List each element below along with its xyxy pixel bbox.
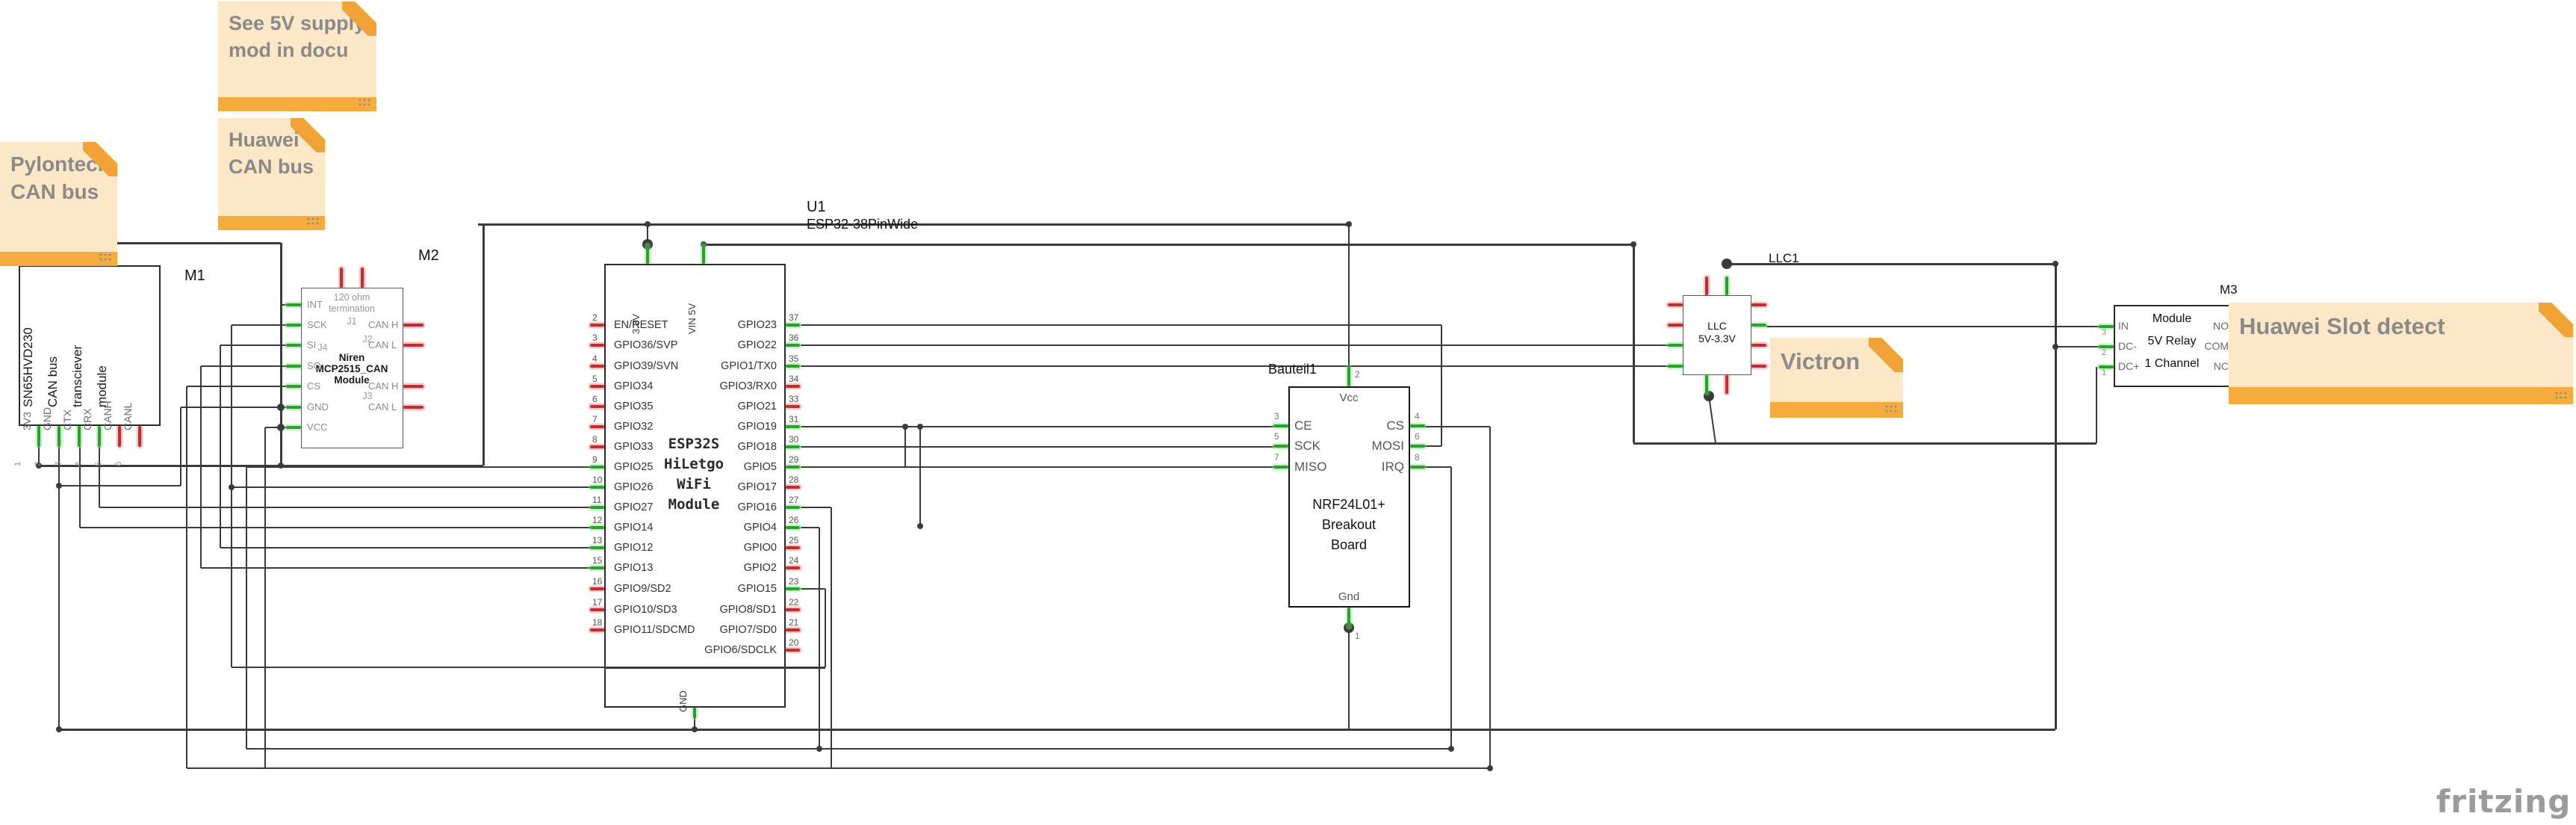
wire-junction-dot	[277, 424, 285, 431]
esp32-pin-label: GPIO15	[738, 583, 777, 595]
m2-pin-label: VCC	[307, 421, 327, 433]
llc-right-pin[interactable]	[1751, 324, 1766, 327]
wire-segment[interactable]	[201, 365, 286, 367]
m3-pin-label: DC-	[2118, 340, 2137, 352]
esp32-pin-gnd[interactable]	[693, 708, 696, 718]
esp32-pin-label: GPIO6/SDCLK	[704, 644, 777, 656]
wire-segment[interactable]	[1348, 628, 1350, 729]
esp32-pin-label: GPIO27	[614, 501, 653, 513]
esp32-pin-GPIO13[interactable]	[590, 566, 604, 569]
wire-segment[interactable]	[281, 304, 286, 306]
m2-pin-label: CAN L	[368, 401, 397, 412]
esp32-pin-label: GPIO19	[738, 421, 777, 433]
esp32-pin-label: GPIO14	[614, 522, 653, 534]
wire-segment[interactable]	[246, 467, 247, 749]
esp32-pin-number: 34	[789, 374, 798, 384]
wire-segment[interactable]	[801, 426, 1273, 427]
esp32-pin-GPIO25[interactable]	[590, 466, 604, 469]
wire-segment[interactable]	[232, 667, 633, 668]
esp32-pin-number: 37	[789, 312, 798, 323]
esp32-pin-number: 6	[592, 394, 598, 404]
m1-pin-number: 4	[74, 462, 83, 466]
m2-pin-CAN L[interactable]	[403, 406, 423, 409]
m2-pin-CAN H[interactable]	[403, 324, 423, 327]
esp32-top-pin-label: VIN 5V	[686, 303, 698, 334]
note-bottom-bar	[1770, 402, 1903, 418]
nrf-title-line: NRF24L01+	[1312, 497, 1385, 513]
m1-pin-CRX[interactable]	[98, 426, 101, 447]
esp32-pin-number: 4	[592, 353, 598, 364]
m2-pin-label: CAN H	[368, 319, 398, 330]
esp32-pin-GPIO8/SD1[interactable]	[786, 608, 800, 611]
note-5v-supply[interactable]: See 5V supplymod in docu	[218, 1, 376, 111]
ref-m2: M2	[418, 247, 439, 265]
m2-pin-label: CAN L	[368, 339, 397, 350]
nrf-pin-label: SCK	[1294, 439, 1320, 454]
nrf-pin-CS[interactable]	[1410, 424, 1425, 427]
esp32-pin-GPIO23[interactable]	[786, 324, 800, 327]
esp32-pin-GPIO17[interactable]	[786, 486, 800, 489]
m3-pin-number: 1	[2102, 368, 2106, 377]
note-victron[interactable]: Victron	[1770, 338, 1903, 418]
note-grip-dots-icon	[99, 253, 112, 262]
esp32-pin-label: GPIO21	[738, 401, 777, 412]
m1-pin-GND[interactable]	[58, 426, 60, 447]
schematic-canvas: SN65HVD230CAN bustranscievermodule3V31GN…	[0, 0, 2576, 825]
esp32-pin-GPIO5[interactable]	[786, 466, 800, 469]
esp32-pin-number: 10	[592, 475, 602, 485]
m3-title-line: Module	[2153, 312, 2191, 326]
esp32-pin-label: GPIO13	[614, 562, 653, 574]
esp32-pin-number: 2	[592, 312, 598, 323]
m2-pin-INT[interactable]	[286, 303, 301, 306]
esp32-title-line: ESP32S	[668, 436, 720, 452]
esp32-pin-3.3V[interactable]	[646, 244, 649, 264]
esp32-pin-label: GPIO5	[744, 461, 777, 473]
wire-segment[interactable]	[1766, 326, 2099, 327]
wire-segment[interactable]	[1441, 325, 1442, 446]
note-huawei-can[interactable]: HuaweiCAN bus	[218, 118, 325, 230]
m2-title-line: MCP2515_CAN	[316, 363, 388, 374]
wire-segment[interactable]	[59, 729, 2055, 731]
m1-title-line: SN65HVD230	[21, 327, 36, 407]
esp32-pin-number: 15	[592, 555, 602, 566]
esp32-pin-GPIO18[interactable]	[786, 445, 800, 448]
wire-segment[interactable]	[801, 324, 1441, 326]
m1-pin-number: 6	[114, 462, 123, 466]
esp32-pin-GPIO9/SD2[interactable]	[590, 587, 604, 590]
m2-small-text: termination	[329, 303, 375, 314]
m2-pin-label: CAN H	[368, 380, 398, 392]
nrf-title-line: Breakout	[1322, 517, 1376, 533]
m2-pin-GND[interactable]	[286, 406, 301, 409]
nrf-pin-label: CE	[1294, 418, 1312, 433]
wire-junction-dot	[56, 483, 62, 489]
wire-segment[interactable]	[919, 427, 921, 527]
llc-right-pin[interactable]	[1751, 303, 1766, 306]
esp32-pin-number: 28	[789, 475, 798, 485]
m1-pin-number: 2	[34, 462, 43, 466]
esp32-pin-VIN 5V[interactable]	[702, 244, 705, 264]
esp32-pin-label: GPIO22	[738, 339, 777, 351]
esp32-pin-number: 20	[789, 637, 798, 648]
llc-right-pin[interactable]	[1751, 344, 1766, 347]
wire-junction-dot	[1346, 221, 1352, 227]
esp32-pin-number: 27	[789, 495, 798, 505]
llc-title-line: 5V-3.3V	[1698, 333, 1736, 344]
esp32-pin-label: GPIO3/RX0	[719, 380, 777, 392]
esp32-pin-GPIO7/SD0[interactable]	[786, 628, 800, 631]
note-bottom-bar	[2229, 387, 2573, 404]
esp32-pin-GPIO36/SVP[interactable]	[590, 344, 604, 347]
wire-junction-dot	[1722, 259, 1732, 269]
wire-segment[interactable]	[1489, 427, 1491, 768]
esp32-pin-number: 30	[789, 434, 798, 445]
wire-junction-dot	[2052, 344, 2058, 350]
esp32-pin-GPIO22[interactable]	[786, 344, 800, 347]
nrf-pin-number: 6	[1415, 431, 1420, 442]
esp32-pin-GPIO21[interactable]	[786, 405, 800, 408]
esp32-pin-GPIO32[interactable]	[590, 425, 604, 428]
wire-segment[interactable]	[1425, 466, 1451, 468]
wire-segment[interactable]	[220, 547, 590, 549]
m2-pin-SCK[interactable]	[286, 324, 301, 327]
m2-small-text: 120 ohm	[334, 292, 370, 303]
wire-junction-dot	[692, 726, 698, 732]
wire-segment[interactable]	[59, 485, 181, 486]
wire-junction-dot	[1448, 746, 1454, 752]
esp32-pin-GPIO26[interactable]	[590, 486, 604, 489]
esp32-pin-label: GPIO10/SD3	[614, 604, 677, 616]
m2-pin-label: SI	[307, 339, 316, 350]
m1-pin-label: CANL	[122, 403, 134, 430]
note-grip-dots-icon	[358, 98, 371, 108]
wire-junction-dot	[1630, 241, 1636, 247]
wire-junction-dot	[278, 463, 284, 469]
note-text: Huawei Slot detect	[2239, 312, 2445, 342]
nrf-pin-number: 1	[1355, 631, 1360, 641]
llc-bottom-pin[interactable]	[1705, 375, 1708, 394]
ref-u1: U1	[807, 199, 826, 216]
ref-m3: M3	[2220, 282, 2238, 297]
esp32-pin-label: GPIO32	[614, 421, 653, 433]
esp32-pin-GPIO11/SDCMD[interactable]	[590, 628, 604, 631]
wire-junction-dot	[816, 746, 822, 752]
esp32-pin-label: GPIO7/SD0	[719, 624, 777, 636]
esp32-pin-label: GPIO33	[614, 441, 653, 453]
m2-termination-pin[interactable]	[340, 268, 343, 288]
esp32-pin-label: GPIO39/SVN	[614, 360, 678, 372]
nrf-pin-MISO[interactable]	[1273, 466, 1288, 469]
esp32-pin-number: 9	[592, 454, 598, 465]
wire-segment[interactable]	[200, 366, 202, 568]
note-fold-corner-icon	[1869, 338, 1903, 372]
note-fold-corner-icon	[291, 118, 325, 152]
wire-segment[interactable]	[801, 527, 819, 528]
esp32-pin-label: GPIO1/TX0	[721, 360, 777, 372]
ref-bauteil1: Bauteil1	[1268, 362, 1317, 377]
m1-pin-number: 3	[54, 462, 63, 466]
wire-segment[interactable]	[1425, 426, 1490, 427]
esp32-pin-GPIO33[interactable]	[590, 445, 604, 448]
wire-segment[interactable]	[825, 589, 826, 667]
nrf-pin-SCK[interactable]	[1273, 445, 1288, 448]
m2-pin-CAN H[interactable]	[403, 385, 423, 388]
esp32-pin-number: 16	[592, 576, 602, 587]
wire-segment[interactable]	[246, 466, 590, 468]
m2-pin-label: GND	[307, 401, 329, 412]
m2-small-text: J3	[362, 391, 372, 401]
note-fold-corner-icon	[2539, 303, 2573, 337]
note-pylontech-can[interactable]: PylontechCAN bus	[0, 142, 117, 266]
esp32-pin-GPIO12[interactable]	[590, 546, 604, 549]
m2-pin-VCC[interactable]	[286, 426, 301, 429]
note-huawei-slot[interactable]: Huawei Slot detect	[2229, 303, 2573, 404]
wire-segment[interactable]	[2055, 264, 2057, 729]
esp32-title-line: Module	[668, 496, 720, 513]
esp32-pin-label: GPIO25	[614, 461, 653, 473]
wire-segment[interactable]	[280, 243, 282, 466]
wire-segment[interactable]	[220, 344, 286, 346]
wire-segment[interactable]	[232, 486, 590, 488]
wire-segment[interactable]	[783, 667, 825, 669]
m2-pin-SO[interactable]	[286, 365, 301, 368]
esp32-pin-GPIO27[interactable]	[590, 506, 604, 509]
nrf-pin-number: 4	[1415, 411, 1420, 421]
m3-pin-label: COM	[2204, 340, 2229, 352]
nrf-pin-number: 5	[1274, 431, 1279, 442]
m2-small-text: J1	[347, 316, 356, 327]
llc-bottom-pin[interactable]	[1725, 375, 1728, 394]
wire-segment[interactable]	[180, 407, 181, 486]
llc-right-pin[interactable]	[1751, 365, 1766, 368]
wire-segment[interactable]	[220, 345, 221, 548]
nrf-pin-vcc[interactable]	[1347, 366, 1350, 386]
wire-segment[interactable]	[201, 567, 590, 569]
wire-junction-dot	[229, 484, 235, 490]
esp32-pin-number: 35	[789, 353, 798, 364]
m1-pin-label: CRX	[81, 408, 93, 430]
llc-title-line: LLC	[1707, 320, 1727, 332]
nrf-pin-number: 8	[1415, 452, 1420, 463]
m1-pin-label: CTX	[61, 410, 73, 430]
esp32-pin-EN/RESET[interactable]	[590, 324, 604, 327]
wire-segment[interactable]	[482, 224, 485, 466]
esp32-pin-number: 23	[789, 576, 798, 587]
esp32-pin-GPIO2[interactable]	[786, 566, 800, 569]
esp32-pin-GPIO1/TX0[interactable]	[786, 365, 800, 368]
esp32-pin-number: 31	[789, 414, 798, 424]
wire-junction-dot	[645, 221, 651, 227]
wire-segment[interactable]	[1633, 442, 2097, 445]
ref-m1: M1	[184, 268, 205, 285]
m1-pin-CTX[interactable]	[78, 426, 81, 447]
wire-segment[interactable]	[801, 588, 825, 590]
esp32-pin-number: 13	[592, 535, 602, 546]
esp32-pin-GPIO6/SDCLK[interactable]	[786, 649, 800, 652]
llc-left-pin[interactable]	[1668, 365, 1683, 368]
m1-pin-label: 3V3	[21, 412, 33, 430]
m2-small-text: J4	[317, 342, 327, 353]
m1-pin-3V3[interactable]	[37, 426, 40, 447]
wire-junction-dot	[277, 404, 285, 411]
m1-pin-number: 5	[94, 462, 103, 466]
esp32-pin-label: GPIO23	[738, 319, 777, 331]
wire-junction-dot	[56, 726, 62, 732]
esp32-pin-number: 25	[789, 535, 798, 546]
wire-segment[interactable]	[1425, 445, 1441, 447]
llc-top-pin[interactable]	[1725, 276, 1728, 295]
wire-segment[interactable]	[80, 527, 590, 528]
esp32-pin-label: EN/RESET	[614, 319, 668, 331]
nrf-pin-number: 3	[1274, 411, 1279, 421]
m2-pin-label: CS	[307, 380, 320, 392]
esp32-pin-label: GPIO18	[738, 441, 777, 453]
esp32-pin-number: 36	[789, 333, 798, 343]
esp32-title-line: WiFi	[677, 476, 711, 492]
wire-segment[interactable]	[187, 386, 286, 387]
wire-segment[interactable]	[2096, 367, 2097, 443]
wire-segment[interactable]	[264, 427, 266, 768]
m3-pin-number: 2	[2102, 348, 2106, 357]
esp32-pin-label: GPIO12	[614, 542, 653, 554]
wire-junction-dot	[917, 424, 923, 430]
note-fold-corner-icon	[83, 142, 117, 176]
nrf-pin-label: IRQ	[1382, 460, 1404, 475]
nrf-pin-CE[interactable]	[1273, 424, 1288, 427]
nrf-pin-label: CS	[1386, 418, 1404, 433]
nrf-pin-number: 7	[1274, 452, 1279, 463]
esp32-pin-number: 7	[592, 414, 598, 424]
m2-pin-label: SO	[307, 360, 321, 371]
m3-pin-label: NC	[2214, 360, 2229, 372]
esp32-pin-label: GPIO34	[614, 380, 653, 392]
nrf-pin-number: 2	[1355, 369, 1360, 380]
wire-segment[interactable]	[1450, 467, 1452, 749]
nrf-pin-MOSI[interactable]	[1410, 445, 1425, 448]
m2-title-line: Niren	[339, 352, 365, 363]
esp32-pin-GPIO3/RX0[interactable]	[786, 385, 800, 388]
esp32-pin-GPIO4[interactable]	[786, 526, 800, 529]
esp32-pin-GPIO10/SD3[interactable]	[590, 608, 604, 611]
wire-segment[interactable]	[99, 507, 590, 508]
module-m1-sn65hvd230[interactable]	[19, 265, 161, 426]
nrf-pin-IRQ[interactable]	[1410, 466, 1425, 469]
m3-title-line: 1 Channel	[2145, 357, 2200, 371]
wire-junction-dot	[902, 424, 908, 430]
wire-segment[interactable]	[2055, 346, 2099, 347]
esp32-pin-GPIO14[interactable]	[590, 526, 604, 529]
wire-segment[interactable]	[801, 344, 1668, 346]
esp32-pin-label: GPIO26	[614, 481, 653, 493]
wire-segment[interactable]	[801, 507, 831, 508]
esp32-pin-label: GPIO2	[744, 562, 777, 574]
wire-segment[interactable]	[246, 748, 1451, 750]
note-fold-corner-icon	[342, 1, 376, 36]
wire-segment[interactable]	[187, 767, 1490, 769]
wire-segment-diagonal[interactable]	[1708, 396, 1716, 443]
wire-segment[interactable]	[801, 466, 1273, 468]
esp32-pin-number: 12	[592, 515, 602, 525]
note-grip-dots-icon	[306, 217, 320, 226]
esp32-pin-GPIO0[interactable]	[786, 546, 800, 549]
esp32-pin-number: 21	[789, 617, 798, 628]
wire-segment[interactable]	[186, 386, 187, 768]
wire-segment[interactable]	[704, 244, 1633, 246]
wire-segment[interactable]	[181, 407, 286, 408]
nrf-pin-vcc-label: Vcc	[1339, 392, 1358, 404]
m1-pin-label: GND	[41, 407, 53, 430]
esp32-pin-label: GPIO17	[738, 481, 777, 493]
esp32-pin-GPIO15[interactable]	[786, 587, 800, 590]
nrf-title-line: Board	[1331, 537, 1367, 553]
esp32-pin-number: 17	[592, 597, 602, 608]
esp32-pin-label: GPIO9/SD2	[614, 583, 671, 595]
wire-segment[interactable]	[79, 445, 81, 528]
esp32-pin-number: 8	[592, 434, 598, 445]
note-grip-dots-icon	[2554, 391, 2568, 401]
m2-termination-pin[interactable]	[361, 268, 364, 288]
wire-segment[interactable]	[231, 325, 232, 667]
wire-segment[interactable]	[801, 365, 1668, 367]
m2-pin-CS[interactable]	[286, 385, 301, 388]
esp32-pin-label: GPIO36/SVP	[614, 339, 677, 351]
wire-segment[interactable]	[801, 446, 1273, 448]
esp32-pin-number: 33	[789, 394, 798, 404]
m1-title-line: CAN bus	[46, 356, 60, 407]
llc-left-pin[interactable]	[1668, 344, 1683, 347]
wire-segment[interactable]	[831, 507, 832, 768]
m3-pin-label: NO	[2213, 320, 2229, 332]
wire-junction-dot	[1487, 765, 1493, 771]
wire-junction-dot	[2052, 261, 2058, 267]
fritzing-watermark: fritzing	[2436, 783, 2571, 820]
m1-title-line: transciever	[70, 345, 85, 407]
esp32-pin-GPIO16[interactable]	[786, 506, 800, 509]
llc-left-pin[interactable]	[1668, 324, 1683, 327]
m2-pin-SI[interactable]	[286, 344, 301, 347]
wire-segment[interactable]	[99, 445, 100, 507]
esp32-pin-label: GPIO16	[738, 501, 777, 513]
wire-junction-dot	[917, 523, 923, 529]
wire-segment[interactable]	[819, 528, 820, 749]
esp32-title-line: HiLetgo	[664, 456, 724, 472]
esp32-pin-label: GPIO8/SD1	[719, 604, 777, 616]
llc-left-pin[interactable]	[1668, 303, 1683, 306]
ref-llc1: LLC1	[1769, 251, 1799, 266]
note-bottom-bar	[218, 97, 376, 111]
esp32-pin-label: GPIO0	[744, 542, 777, 554]
llc-top-pin[interactable]	[1705, 276, 1708, 295]
m3-pin-number: 3	[2102, 328, 2106, 337]
esp32-pin-GPIO34[interactable]	[590, 385, 604, 388]
wire-segment[interactable]	[232, 324, 286, 326]
esp32-pin-GPIO35[interactable]	[590, 405, 604, 408]
m2-pin-CAN L[interactable]	[403, 344, 423, 347]
nrf-pin-label: MISO	[1294, 460, 1326, 475]
m3-pin-label: IN	[2118, 320, 2129, 332]
esp32-pin-number: 29	[789, 454, 798, 465]
esp32-pin-label: GPIO35	[614, 401, 653, 412]
nrf-pin-label: MOSI	[1372, 439, 1404, 454]
m1-pin-CANL[interactable]	[138, 426, 141, 447]
wire-segment[interactable]	[1633, 244, 1635, 443]
m1-pin-CANH[interactable]	[118, 426, 121, 447]
note-text: Victron	[1781, 347, 1860, 377]
nrf-pin-gnd[interactable]	[1347, 608, 1350, 628]
esp32-pin-GPIO39/SVN[interactable]	[590, 365, 604, 368]
esp32-pin-GPIO19[interactable]	[786, 425, 800, 428]
